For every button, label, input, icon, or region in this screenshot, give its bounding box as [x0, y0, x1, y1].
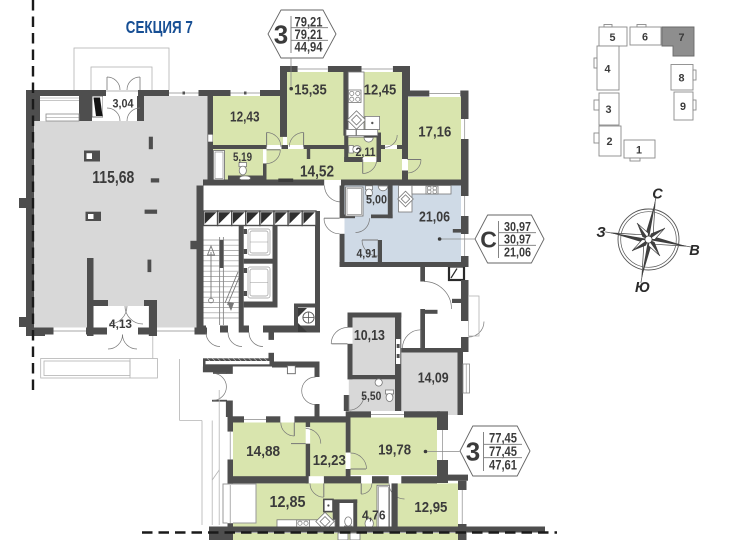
svg-text:115,68: 115,68: [92, 167, 134, 187]
svg-text:7: 7: [678, 32, 684, 44]
svg-text:4: 4: [604, 64, 610, 76]
svg-text:44,94: 44,94: [295, 39, 323, 55]
svg-text:21,06: 21,06: [504, 244, 531, 259]
svg-text:3: 3: [605, 104, 611, 116]
svg-text:5,19: 5,19: [233, 152, 252, 164]
svg-text:12,85: 12,85: [270, 494, 306, 511]
svg-text:5: 5: [609, 32, 615, 44]
svg-text:3,04: 3,04: [113, 99, 135, 111]
svg-text:15,35: 15,35: [294, 81, 327, 98]
svg-text:2,11: 2,11: [356, 145, 376, 159]
svg-text:14,88: 14,88: [246, 443, 280, 460]
svg-text:5,50: 5,50: [361, 389, 381, 403]
svg-text:3: 3: [466, 436, 480, 466]
svg-text:З: З: [596, 225, 605, 241]
svg-text:8: 8: [678, 73, 684, 85]
svg-text:19,78: 19,78: [378, 441, 411, 458]
svg-text:4,13: 4,13: [109, 319, 132, 331]
svg-text:6: 6: [642, 32, 648, 44]
svg-text:14,09: 14,09: [418, 370, 449, 386]
svg-text:17,16: 17,16: [418, 124, 451, 141]
svg-text:4,91: 4,91: [356, 247, 377, 261]
svg-text:12,95: 12,95: [414, 499, 447, 516]
svg-text:21,06: 21,06: [419, 209, 450, 226]
svg-text:10,13: 10,13: [354, 328, 385, 344]
svg-text:С: С: [652, 187, 663, 203]
svg-text:В: В: [689, 243, 699, 259]
svg-text:С: С: [480, 226, 497, 252]
svg-text:СЕКЦИЯ 7: СЕКЦИЯ 7: [126, 17, 193, 37]
svg-text:3: 3: [274, 19, 288, 49]
svg-text:47,61: 47,61: [489, 456, 517, 472]
svg-text:14,52: 14,52: [300, 164, 334, 181]
svg-text:5,00: 5,00: [366, 193, 387, 207]
svg-text:12,45: 12,45: [364, 81, 397, 98]
svg-text:9: 9: [680, 101, 686, 113]
svg-text:1: 1: [636, 145, 642, 157]
svg-text:4,76: 4,76: [362, 508, 386, 523]
svg-text:2: 2: [606, 136, 612, 148]
svg-text:12,43: 12,43: [230, 109, 260, 126]
svg-text:Ю: Ю: [635, 280, 650, 296]
svg-text:12,23: 12,23: [313, 452, 346, 469]
